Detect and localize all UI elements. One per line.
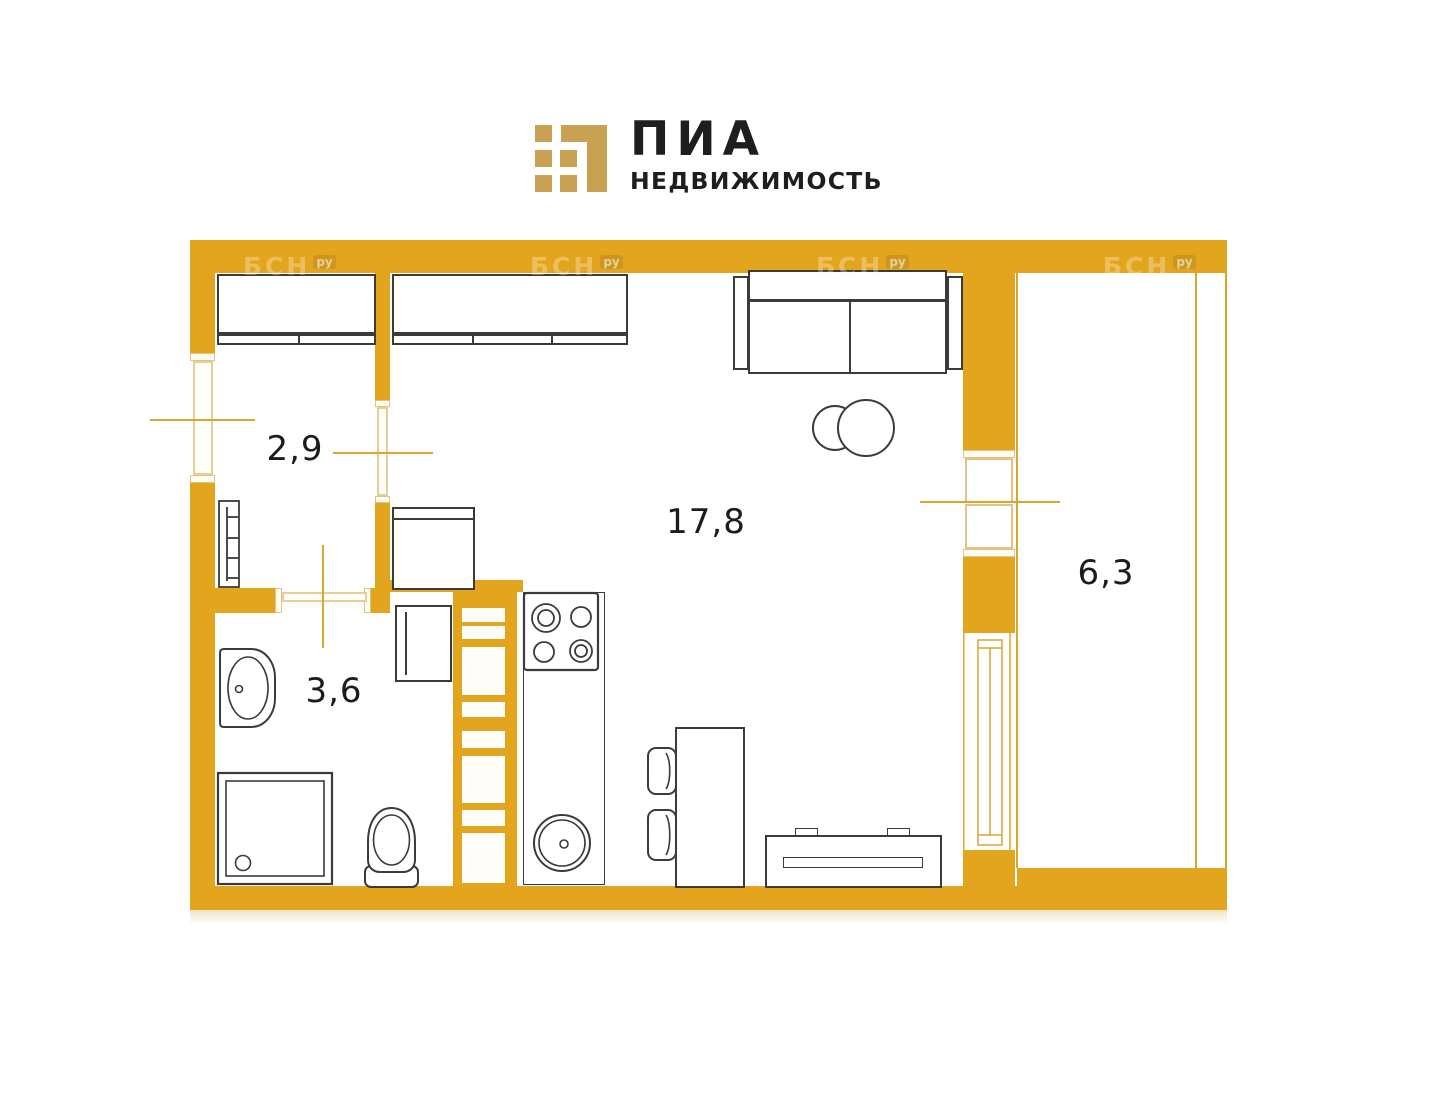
wall-bath-top-left [215, 588, 275, 613]
floor-plan-page: ПИА НЕДВИЖИМОСТЬ [0, 0, 1432, 1102]
bathroom-area-label: 3,6 [305, 671, 362, 711]
logo-subtitle: НЕДВИЖИМОСТЬ [630, 168, 883, 194]
wall-right-lower [963, 850, 1015, 910]
washbasin-icon [217, 646, 279, 730]
balcony-glazing-line [1195, 273, 1197, 868]
hall-living-door-cap [375, 496, 390, 503]
wardrobe-hallway-rail [217, 334, 376, 345]
rail-divider [298, 336, 300, 343]
sofa-armrest-right [947, 276, 963, 370]
sofa-back [748, 270, 947, 301]
balcony-door-axis-line [920, 501, 1060, 503]
fridge [392, 507, 475, 590]
balcony-glazing-line [1225, 272, 1227, 868]
wall-bath-top-right [371, 588, 390, 613]
wall-balcony-slab [1017, 868, 1227, 910]
washer-door-line [405, 612, 407, 675]
wall-bottom [190, 886, 1017, 910]
wall-top [190, 240, 1227, 273]
balcony-area-label: 6,3 [1077, 553, 1134, 593]
vent-shaft-cell [462, 756, 505, 803]
entry-radiator-icon [217, 499, 242, 590]
wall-right-mid [963, 557, 1015, 633]
wall-hall-living-upper [375, 273, 390, 400]
fridge-line [394, 518, 473, 520]
sofa-seat [748, 300, 947, 374]
balcony-door-cap [963, 450, 1015, 458]
entrance-opening-cap [190, 353, 215, 361]
toilet-icon [363, 804, 421, 890]
plan-shadow [190, 910, 1227, 924]
kitchen-sink-icon [530, 811, 596, 877]
coffee-table-large-circle [837, 399, 895, 457]
balcony-door-cap [963, 549, 1015, 557]
bath-door-cap [275, 588, 282, 613]
shower-cabin-icon [216, 771, 335, 887]
vent-shaft-cell [462, 833, 505, 883]
vent-shaft-cell [462, 647, 505, 695]
vent-shaft-cell [462, 626, 505, 639]
hall-door-axis-line [333, 452, 433, 454]
balcony-edge-line [1016, 273, 1018, 868]
chairs-icon [646, 746, 682, 864]
rail-divider [472, 336, 474, 343]
bath-door [282, 592, 367, 602]
washing-machine [395, 605, 452, 682]
vent-shaft-cell [462, 608, 505, 622]
wall-right-upper [963, 273, 1015, 450]
wardrobe-hallway [217, 274, 376, 334]
balcony-window-panel [965, 504, 1013, 549]
bath-door-axis-line [322, 545, 324, 648]
dining-table [675, 727, 745, 888]
hall-living-door-cap [375, 400, 390, 407]
wall-left-upper [190, 240, 215, 353]
sofa-seat-divider [849, 302, 851, 372]
wall-left-lower [190, 483, 215, 910]
vent-shaft-cell [462, 810, 505, 826]
entrance-opening-cap [190, 475, 215, 483]
entrance-door [193, 361, 213, 475]
sofa-armrest-left [733, 276, 749, 370]
wardrobe-living [392, 274, 628, 334]
balcony-door-panel [965, 458, 1013, 503]
logo-text: ПИА НЕДВИЖИМОСТЬ [630, 116, 883, 194]
rail-divider [551, 336, 553, 343]
wardrobe-living-rail [392, 334, 628, 345]
tv-screen [783, 857, 923, 868]
vent-shaft-cell [462, 702, 505, 717]
stove-icon [522, 591, 600, 672]
living-area-label: 17,8 [666, 502, 746, 542]
hallway-area-label: 2,9 [266, 429, 323, 469]
window-icon [963, 633, 1011, 851]
pia-logo-icon [535, 125, 607, 192]
logo-title: ПИА [630, 116, 883, 164]
entrance-axis-line [150, 419, 255, 421]
vent-shaft-cell [462, 731, 505, 748]
